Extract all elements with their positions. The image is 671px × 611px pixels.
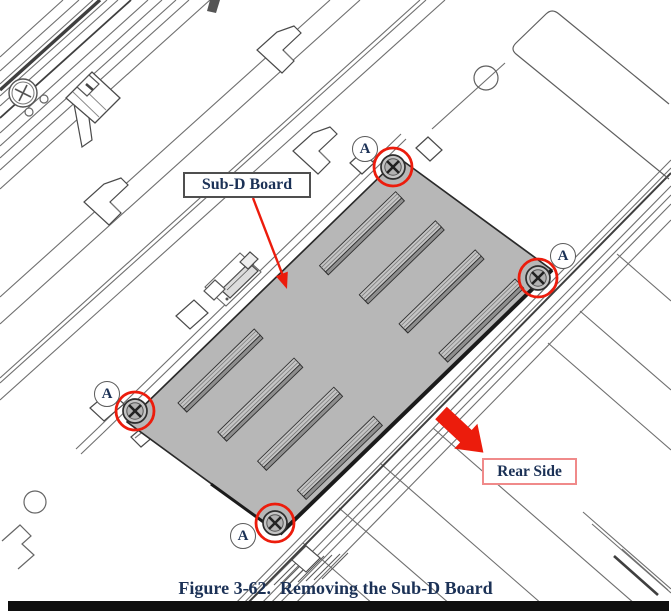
- screw-callout-badge: A: [352, 136, 378, 162]
- sheetmetal-notch: [2, 525, 34, 569]
- phillips-screw-icon: [381, 155, 405, 179]
- screw-callout-badge: A: [230, 523, 256, 549]
- bracket-hook: [257, 26, 301, 73]
- rail-clamp: [66, 72, 120, 147]
- screw-callout-badge: A: [94, 381, 120, 407]
- footer-divider-bar: [8, 601, 669, 611]
- bracket-hook: [84, 178, 128, 225]
- edge-tick: [207, 0, 220, 13]
- bracket-hook: [293, 127, 337, 174]
- rear-direction-arrow: [435, 407, 483, 453]
- screw-callout-badge: A: [550, 243, 576, 269]
- mount-tab: [176, 300, 208, 329]
- panel-cutout: [474, 11, 669, 179]
- panel-hole: [474, 66, 498, 90]
- rear-side-label: Rear Side: [482, 458, 577, 485]
- phillips-screw-icon: [526, 266, 550, 290]
- cable-clamp: [204, 252, 261, 306]
- chassis-drawing: [0, 0, 671, 611]
- chassis-hole: [24, 491, 46, 513]
- phillips-screw-icon: [263, 511, 287, 535]
- figure-3-62: Sub-D Board Rear Side A A A A Figure 3-6…: [0, 0, 671, 611]
- figure-caption: Figure 3-62. Removing the Sub-D Board: [0, 578, 671, 599]
- chassis-screw-icon: [9, 79, 48, 116]
- phillips-screw-icon: [123, 399, 147, 423]
- mount-tab: [416, 137, 442, 161]
- board-label: Sub-D Board: [183, 172, 311, 198]
